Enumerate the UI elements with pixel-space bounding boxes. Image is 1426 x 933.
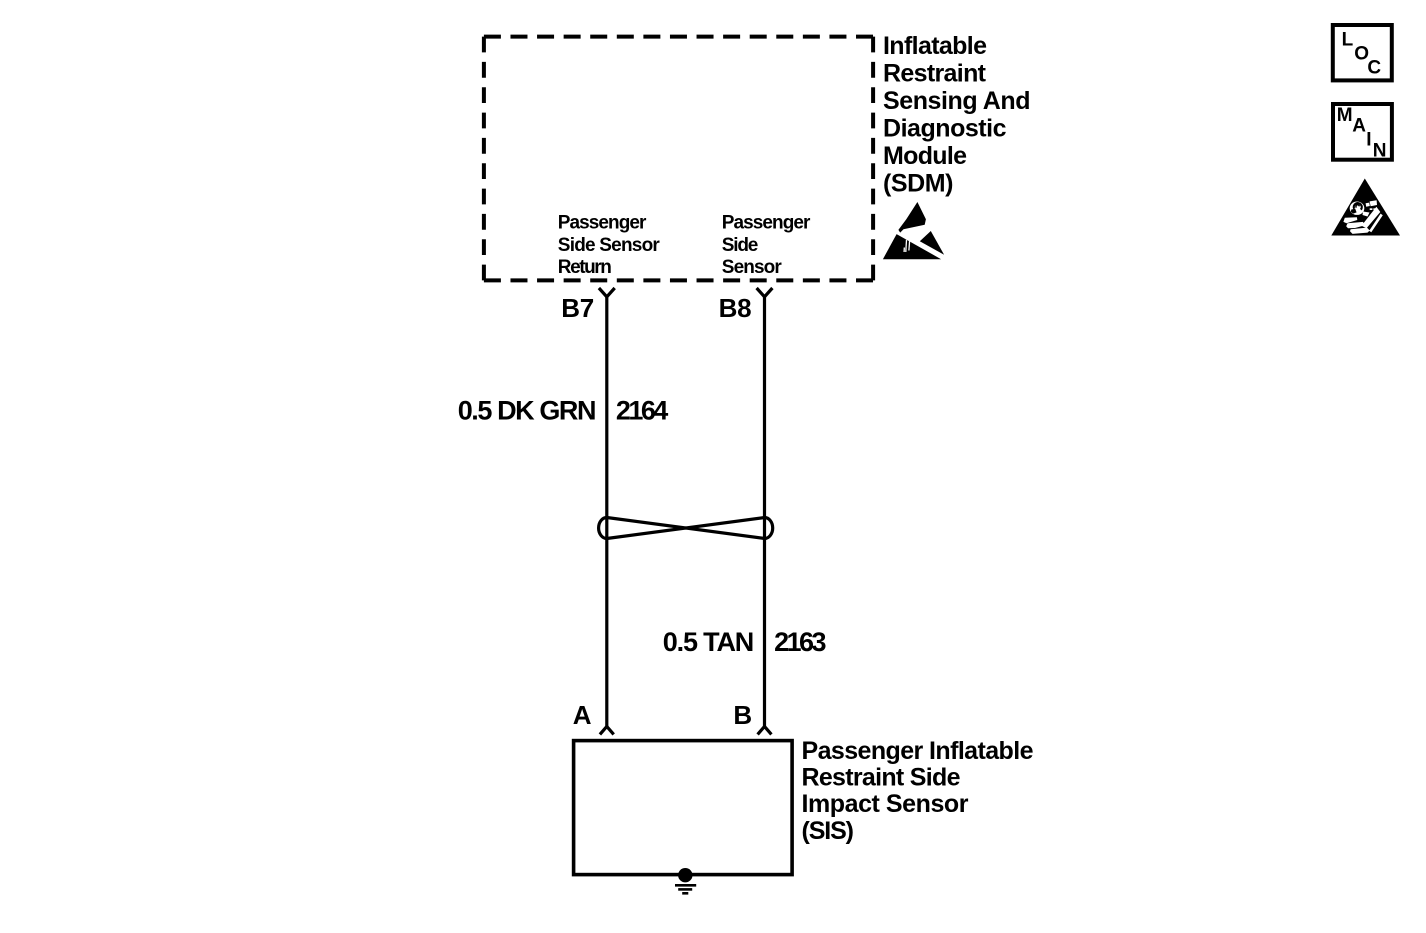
svg-text:Sensing And: Sensing And bbox=[883, 87, 1031, 115]
svg-text:A: A bbox=[573, 700, 592, 730]
svg-text:B: B bbox=[733, 700, 752, 730]
svg-text:L: L bbox=[1342, 29, 1354, 50]
svg-text:I: I bbox=[1366, 130, 1371, 151]
svg-text:M: M bbox=[1337, 105, 1353, 126]
svg-text:B7: B7 bbox=[561, 293, 594, 323]
svg-text:Return: Return bbox=[558, 257, 612, 278]
svg-text:Passenger: Passenger bbox=[722, 213, 811, 234]
svg-text:Side Sensor: Side Sensor bbox=[558, 235, 661, 256]
svg-text:N: N bbox=[1373, 140, 1387, 161]
svg-text:Module: Module bbox=[883, 142, 967, 170]
svg-text:Passenger: Passenger bbox=[558, 213, 647, 234]
svg-text:2163: 2163 bbox=[774, 627, 826, 657]
svg-text:(SIS): (SIS) bbox=[802, 817, 855, 845]
svg-text:B8: B8 bbox=[719, 293, 752, 323]
svg-text:Diagnostic: Diagnostic bbox=[883, 115, 1007, 143]
svg-text:Restraint: Restraint bbox=[883, 60, 987, 88]
svg-text:Side: Side bbox=[722, 235, 759, 256]
svg-text:2164: 2164 bbox=[616, 396, 668, 426]
svg-text:Restraint Side: Restraint Side bbox=[802, 763, 961, 791]
svg-text:Impact Sensor: Impact Sensor bbox=[802, 790, 969, 818]
svg-text:0.5 DK GRN: 0.5 DK GRN bbox=[458, 396, 597, 426]
svg-text:Passenger Inflatable: Passenger Inflatable bbox=[802, 737, 1034, 765]
svg-text:C: C bbox=[1367, 57, 1381, 78]
svg-text:A: A bbox=[1352, 115, 1366, 136]
svg-text:Sensor: Sensor bbox=[722, 257, 783, 278]
svg-text:0.5 TAN: 0.5 TAN bbox=[663, 627, 755, 657]
svg-text:(SDM): (SDM) bbox=[883, 170, 954, 198]
svg-text:Inflatable: Inflatable bbox=[883, 32, 987, 60]
